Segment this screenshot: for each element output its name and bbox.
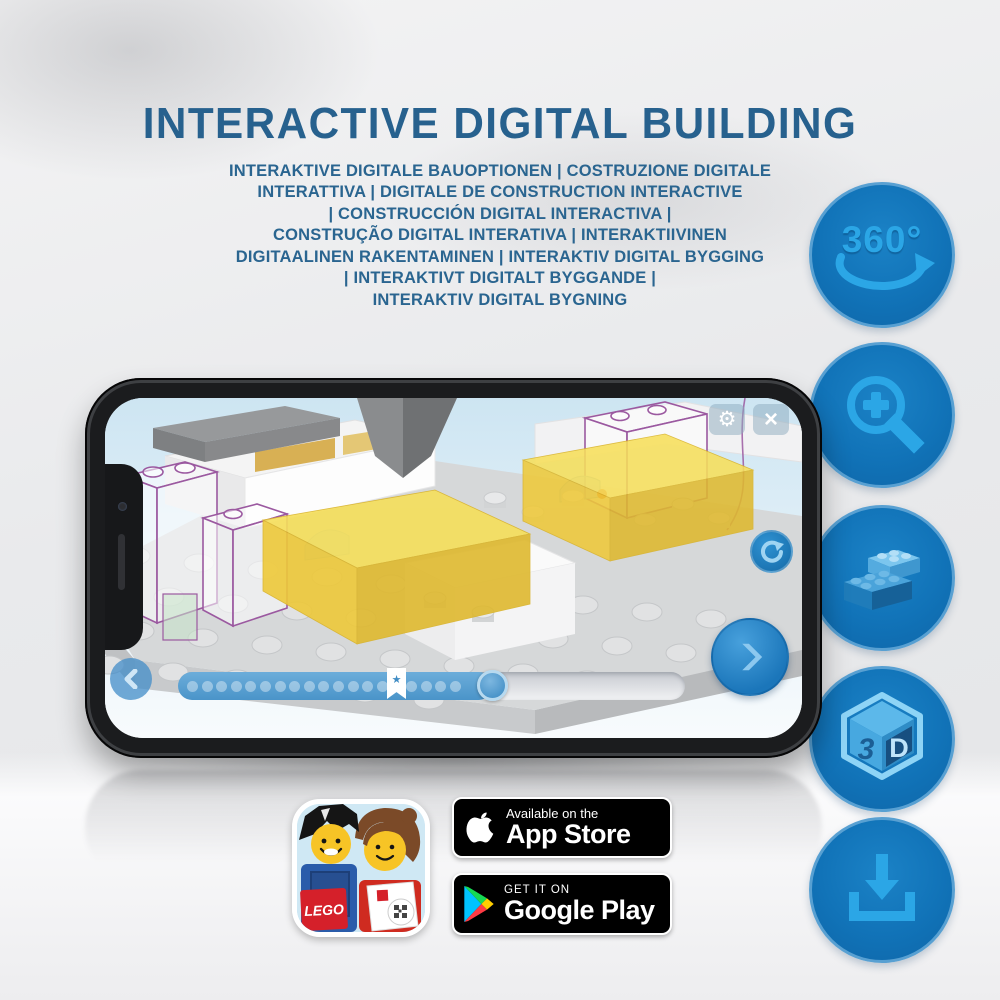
progress-dot <box>202 681 213 692</box>
page-title: INTERACTIVE DIGITAL BUILDING <box>20 99 980 149</box>
3d-face-right: D <box>889 733 909 763</box>
front-camera <box>118 502 127 511</box>
feature-circle-brick <box>809 505 955 651</box>
subtitle-line: CONSTRUÇÃO DIGITAL INTERATIVA | INTERAKT… <box>150 225 850 246</box>
progress-dot <box>260 681 271 692</box>
apple-logo-icon <box>464 809 496 847</box>
subtitle-line: | INTERAKTIVT DIGITALT BYGGANDE | <box>150 268 850 289</box>
lego-app-icon-art: LEGO <box>297 804 425 932</box>
previous-step-button[interactable] <box>110 658 152 700</box>
subtitle-line: INTERAKTIVE DIGITALE BAUOPTIONEN | COSTR… <box>150 161 850 182</box>
progress-dot <box>348 681 359 692</box>
app-store-tagline: Available on the <box>506 807 631 821</box>
feature-circle-3d: 3 D <box>809 666 955 812</box>
360-rotation-icon <box>827 253 937 297</box>
progress-dot <box>304 681 315 692</box>
subtitle-line: INTERATTIVA | DIGITALE DE CONSTRUCTION I… <box>150 182 850 203</box>
chevron-left-icon <box>123 669 139 689</box>
rotate-arrow-icon <box>759 539 785 565</box>
zoom-in-icon <box>834 367 930 463</box>
lego-logo-text: LEGO <box>304 901 345 919</box>
settings-button[interactable]: ⚙ <box>709 404 745 435</box>
progress-dot <box>421 681 432 692</box>
progress-dot <box>333 681 344 692</box>
subtitle-translations: INTERAKTIVE DIGITALE BAUOPTIONEN | COSTR… <box>150 161 850 311</box>
phone-screen: ⚙ × ★ <box>105 398 802 738</box>
download-icon <box>832 840 932 940</box>
chevron-right-icon <box>729 636 771 678</box>
lego-brick-icon <box>832 528 932 628</box>
progress-dot <box>450 681 461 692</box>
app-store-name: App Store <box>506 820 631 848</box>
close-button[interactable]: × <box>753 404 789 435</box>
progress-knob[interactable] <box>477 670 508 701</box>
feature-circle-zoom <box>809 342 955 488</box>
close-icon: × <box>764 406 778 434</box>
feature-circle-download <box>809 817 955 963</box>
background-shadow <box>0 0 380 180</box>
google-play-logo-icon <box>464 886 494 922</box>
subtitle-line: | CONSTRUCCIÓN DIGITAL INTERACTIVA | <box>150 204 850 225</box>
google-play-name: Google Play <box>504 896 655 924</box>
smartphone: ⚙ × ★ <box>85 378 822 758</box>
feature-circle-360: 360° <box>809 182 955 328</box>
next-step-button[interactable] <box>711 618 789 696</box>
gear-icon: ⚙ <box>718 407 737 432</box>
progress-dot <box>435 681 446 692</box>
earpiece-speaker <box>118 534 125 590</box>
progress-dot <box>216 681 227 692</box>
build-progress-slider[interactable]: ★ <box>178 672 685 700</box>
progress-dot <box>275 681 286 692</box>
rotate-view-button[interactable] <box>750 530 793 573</box>
progress-dot <box>377 681 388 692</box>
progress-dot <box>231 681 242 692</box>
progress-dot <box>362 681 373 692</box>
phone-notch <box>105 464 143 650</box>
progress-dot <box>318 681 329 692</box>
app-store-badge[interactable]: Available on the App Store <box>452 797 672 858</box>
progress-dot <box>187 681 198 692</box>
lego-app-icon[interactable]: LEGO <box>292 799 430 937</box>
subtitle-line: DIGITAALINEN RAKENTAMINEN | INTERAKTIV D… <box>150 247 850 268</box>
progress-dot <box>245 681 256 692</box>
page-title-text: INTERACTIVE DIGITAL BUILDING <box>143 99 858 148</box>
progress-dot <box>289 681 300 692</box>
3d-cube-icon: 3 D <box>832 689 932 789</box>
progress-dot <box>406 681 417 692</box>
google-play-badge[interactable]: GET IT ON Google Play <box>452 873 672 935</box>
subtitle-line: INTERAKTIV DIGITAL BYGNING <box>150 290 850 311</box>
3d-face-left: 3 <box>858 733 875 766</box>
